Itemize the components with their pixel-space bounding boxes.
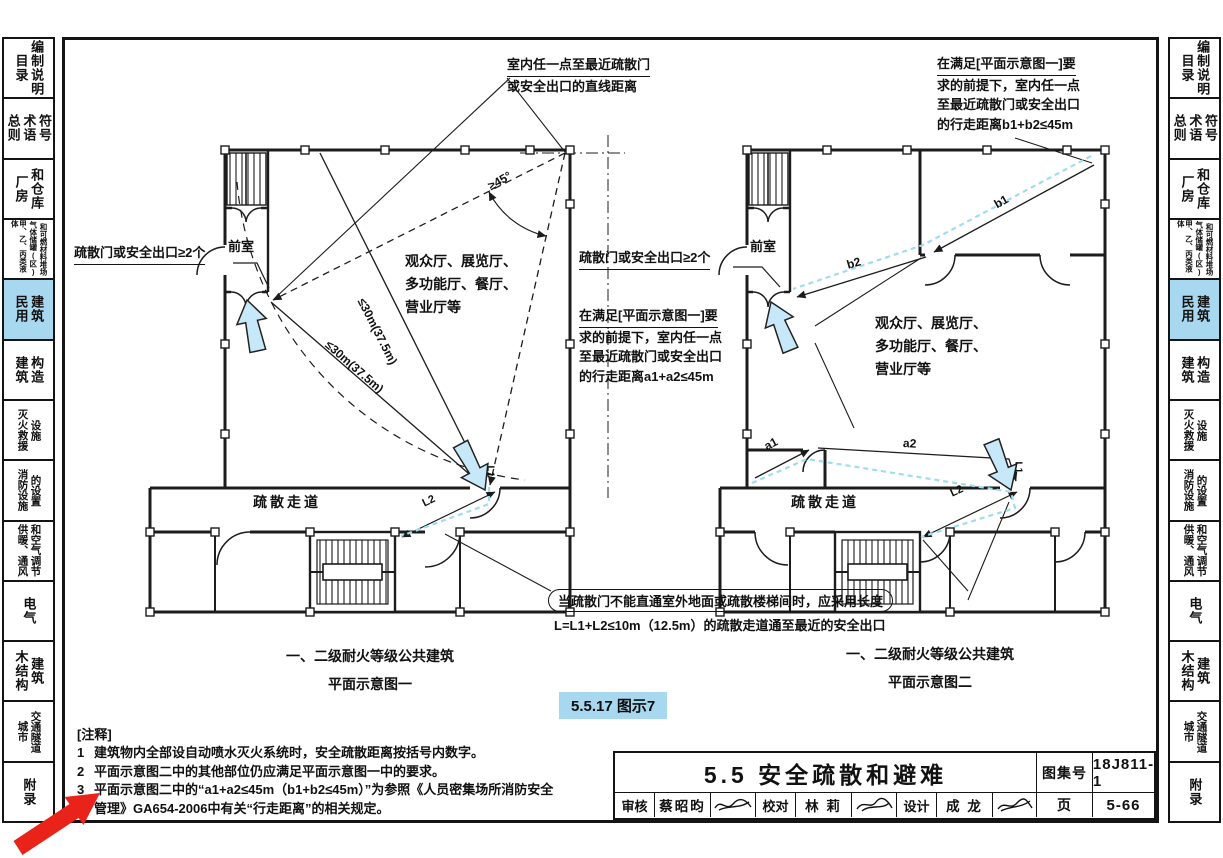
- signature-stamp: [996, 796, 1034, 814]
- right-tab-strip: 目录编制说明 总则术语符号 厂房和仓库 甲、乙、丙类液体气体储罐(区)和可燃材料…: [1168, 37, 1221, 823]
- tab-label: 消防设施: [16, 469, 27, 511]
- tab-label: 厂房: [1180, 175, 1194, 203]
- callout-line: 在满足[平面示意图一]要: [937, 54, 1076, 76]
- tab-label: 建筑: [1196, 657, 1210, 685]
- tab-label: 建筑: [1196, 295, 1210, 323]
- l1-label-left: L1: [485, 466, 496, 478]
- left-tab-strip: 目录编制说明 总则术语符号 厂房和仓库 甲、乙、丙类液体气体储罐(区)和可燃材料…: [2, 37, 55, 823]
- tab-label: 构造: [30, 356, 44, 384]
- sidebar-item-hvac[interactable]: 供暖、通风和空气调节: [2, 520, 55, 582]
- section-title: 5.5 安全疏散和避难: [615, 753, 1037, 793]
- reviewer-label: 审核: [615, 793, 655, 817]
- front-room-label-left: 前室: [228, 236, 254, 255]
- sidebar-item-rescue[interactable]: 灭火救援设施: [2, 399, 55, 461]
- callout-walk-distance-a: 在满足[平面示意图一]要 求的前提下，室内任一点 至最近疏散门或安全出口 的行走…: [579, 306, 722, 386]
- callout-corridor-note: 当疏散门不能直通室外地面或疏散楼梯间时，应采用长度 L=L1+L2≤10m（12…: [548, 589, 893, 634]
- room-use-label-left: 观众厅、展览厅、 多功能厅、餐厅、 营业厅等: [405, 250, 517, 319]
- callout-line: 至最近疏散门或安全出口: [937, 95, 1080, 115]
- tab-label: 和空气调节: [1196, 524, 1207, 577]
- sidebar-item-civil-active[interactable]: 民用建筑: [2, 278, 55, 340]
- sidebar-item-timber[interactable]: 木结构建筑: [1168, 640, 1221, 702]
- sidebar-item-construction[interactable]: 建筑构造: [1168, 339, 1221, 401]
- angle-label: ≥45°: [486, 169, 514, 193]
- tab-label: 交通隧道: [30, 711, 41, 753]
- title-block: 5.5 安全疏散和避难 图集号 18J811-1 审核 蔡昭昀 校对 林 莉 设…: [613, 751, 1156, 820]
- reviewer-signature: [711, 793, 756, 817]
- sidebar-item-civil-active[interactable]: 民用建筑: [1168, 278, 1221, 340]
- callout-line: 的行走距离a1+a2≤45m: [579, 367, 722, 387]
- atlas-page: { "colors": { "highlight_blue": "#a7d8ef…: [0, 0, 1223, 858]
- tab-label: 构造: [1196, 356, 1210, 384]
- tab-label: 木结构: [14, 650, 28, 692]
- label-exits-left: 疏散门或安全出口≥2个: [74, 243, 205, 265]
- checker-name: 林 莉: [796, 793, 852, 817]
- tab-label: 交通隧道: [1196, 711, 1207, 753]
- front-room-label-right: 前室: [750, 236, 776, 255]
- l1-label-right: L1: [1013, 462, 1024, 474]
- tab-label: 电气: [22, 597, 36, 625]
- tab-label: 气体储罐(区): [29, 221, 37, 277]
- room-use-label-right: 观众厅、展览厅、 多功能厅、餐厅、 营业厅等: [875, 312, 987, 381]
- designer-label: 设计: [897, 793, 937, 817]
- sidebar-item-rescue[interactable]: 灭火救援设施: [1168, 399, 1221, 461]
- tab-label: 气体储罐(区): [1195, 221, 1203, 277]
- sidebar-item-tanks[interactable]: 甲、乙、丙类液体气体储罐(区)和可燃材料堆场: [2, 218, 55, 280]
- callout-line: 在满足[平面示意图一]要: [579, 306, 718, 328]
- tab-label: 和仓库: [30, 168, 44, 210]
- b2-label: b2: [845, 254, 862, 271]
- sidebar-item-catalog[interactable]: 目录编制说明: [1168, 37, 1221, 99]
- tab-label: 供暖、通风: [1182, 524, 1193, 577]
- sidebar-item-general-terms[interactable]: 总则术语符号: [2, 97, 55, 159]
- tab-label: 和可燃材料堆场: [1205, 223, 1213, 276]
- corridor-label-left: 疏散走道: [253, 492, 321, 512]
- page-no: 5-66: [1093, 793, 1154, 817]
- tab-label: 设施: [30, 420, 41, 441]
- callout-walk-distance-b: 在满足[平面示意图一]要 求的前提下，室内任一点 至最近疏散门或安全出口 的行走…: [937, 54, 1080, 134]
- caption-left-plan: 一、二级耐火等级公共建筑 平面示意图一: [260, 642, 480, 698]
- tab-label: 附录: [22, 778, 36, 806]
- tab-label: 木结构: [1180, 650, 1194, 692]
- checker-label: 校对: [756, 793, 796, 817]
- tab-label: 城市: [1182, 721, 1193, 742]
- sidebar-item-tunnel[interactable]: 城市交通隧道: [1168, 700, 1221, 762]
- atlas-no-label: 图集号: [1037, 753, 1093, 793]
- sidebar-item-fire-equip[interactable]: 消防设施的设置: [2, 459, 55, 521]
- sidebar-item-construction[interactable]: 建筑构造: [2, 339, 55, 401]
- tab-label: 甲、乙、丙类液体: [1176, 220, 1193, 278]
- b1-label: b1: [992, 192, 1011, 211]
- tab-label: 目录: [14, 54, 28, 82]
- tab-label: 编制说明: [30, 40, 44, 96]
- sidebar-item-electrical[interactable]: 电气: [2, 580, 55, 642]
- tab-label: 城市: [16, 721, 27, 742]
- tab-label: 建筑: [1180, 356, 1194, 384]
- tab-label: 目录: [1180, 54, 1194, 82]
- l2-label-right: L2: [948, 483, 965, 499]
- notes-block: [注释] 1建筑物内全部设自动喷水灭火系统时，安全疏散距离按括号内数字。 2平面…: [77, 726, 582, 818]
- callout-line: 求的前提下，室内任一点: [937, 76, 1080, 96]
- page-label: 页: [1037, 793, 1093, 817]
- sidebar-item-timber[interactable]: 木结构建筑: [2, 640, 55, 702]
- sidebar-item-appendix[interactable]: 附录: [1168, 761, 1221, 823]
- tab-label: 总则: [6, 114, 20, 142]
- left-plan-partitions: [215, 150, 460, 612]
- sidebar-item-hvac[interactable]: 供暖、通风和空气调节: [1168, 520, 1221, 582]
- tab-label: 的设置: [30, 475, 41, 507]
- tab-label: 符号: [37, 114, 51, 142]
- tab-label: 建筑: [30, 295, 44, 323]
- sidebar-item-tanks[interactable]: 甲、乙、丙类液体气体储罐(区)和可燃材料堆场: [1168, 218, 1221, 280]
- right-stairwell: [749, 153, 920, 612]
- checker-signature: [852, 793, 897, 817]
- tab-label: 消防设施: [1182, 469, 1193, 511]
- tab-label: 供暖、通风: [16, 524, 27, 577]
- a1-label: a1: [762, 435, 780, 454]
- reviewer-name: 蔡昭昀: [655, 793, 711, 817]
- tab-label: 甲、乙、丙类液体: [10, 220, 27, 278]
- label-exits-mid: 疏散门或安全出口≥2个: [579, 248, 710, 270]
- sidebar-item-catalog[interactable]: 目录编制说明: [2, 37, 55, 99]
- tab-label: 术语: [1188, 114, 1202, 142]
- tab-label: 和仓库: [1196, 168, 1210, 210]
- tab-label: 灭火救援: [1182, 409, 1193, 451]
- signature-stamp: [854, 796, 894, 814]
- tab-label: 和空气调节: [30, 524, 41, 577]
- left-escape-path: [401, 487, 489, 536]
- notes-header: [注释]: [77, 726, 582, 744]
- distance-label-upper: ≤30m(37.5m): [355, 296, 400, 367]
- tab-label: 术语: [22, 114, 36, 142]
- tab-label: 建筑: [30, 657, 44, 685]
- callout-line: 室内任一点至最近疏散门: [507, 55, 650, 77]
- tab-label: 电气: [1188, 597, 1202, 625]
- callout-line: 至最近疏散门或安全出口: [579, 347, 722, 367]
- note-item: 2平面示意图二中的其他部位仍应满足平面示意图一中的要求。: [77, 763, 582, 781]
- tab-label: 民用: [1180, 295, 1194, 323]
- figure-number-badge: 5.5.17 图示7: [559, 692, 667, 719]
- tab-label: 建筑: [14, 356, 28, 384]
- sidebar-item-electrical[interactable]: 电气: [1168, 580, 1221, 642]
- corridor-label-right: 疏散走道: [791, 492, 859, 512]
- tab-label: 设施: [1196, 420, 1207, 441]
- sidebar-item-factory[interactable]: 厂房和仓库: [1168, 158, 1221, 220]
- a2-label: a2: [903, 436, 917, 451]
- sidebar-item-factory[interactable]: 厂房和仓库: [2, 158, 55, 220]
- tab-label: 民用: [14, 295, 28, 323]
- tab-label: 厂房: [14, 175, 28, 203]
- l2-label-left: L2: [420, 493, 437, 509]
- sidebar-item-fire-equip[interactable]: 消防设施的设置: [1168, 459, 1221, 521]
- sidebar-item-general-terms[interactable]: 总则术语符号: [1168, 97, 1221, 159]
- note-item: 3平面示意图二中的“a1+a2≤45m（b1+b2≤45m）”为参照《人员密集场…: [77, 781, 582, 818]
- right-plan-doors: [719, 208, 1085, 565]
- signature-stamp: [713, 796, 753, 814]
- tab-label: 和可燃材料堆场: [39, 223, 47, 276]
- designer-name: 成 龙: [937, 793, 993, 817]
- sidebar-item-tunnel[interactable]: 城市交通隧道: [2, 700, 55, 762]
- atlas-no: 18J811-1: [1093, 753, 1154, 793]
- callout-direct-distance: 室内任一点至最近疏散门 或安全出口的直线距离: [507, 55, 650, 96]
- tab-label: 总则: [1172, 114, 1186, 142]
- tab-label: 编制说明: [1196, 40, 1210, 96]
- tab-label: 附录: [1188, 778, 1202, 806]
- sidebar-item-appendix[interactable]: 附录: [2, 761, 55, 823]
- callout-line: 或安全出口的直线距离: [507, 77, 650, 97]
- tab-label: 的设置: [1196, 475, 1207, 507]
- tab-label: 灭火救援: [16, 409, 27, 451]
- callout-line: 求的前提下，室内任一点: [579, 328, 722, 348]
- page-frame: 室内任一点至最近疏散门 或安全出口的直线距离 在满足[平面示意图一]要 求的前提…: [62, 37, 1159, 823]
- caption-right-plan: 一、二级耐火等级公共建筑 平面示意图二: [820, 640, 1040, 696]
- callout-line: 的行走距离b1+b2≤45m: [937, 115, 1080, 135]
- designer-signature: [993, 793, 1037, 817]
- note-item: 1建筑物内全部设自动喷水灭火系统时，安全疏散距离按括号内数字。: [77, 744, 582, 762]
- tab-label: 符号: [1203, 114, 1217, 142]
